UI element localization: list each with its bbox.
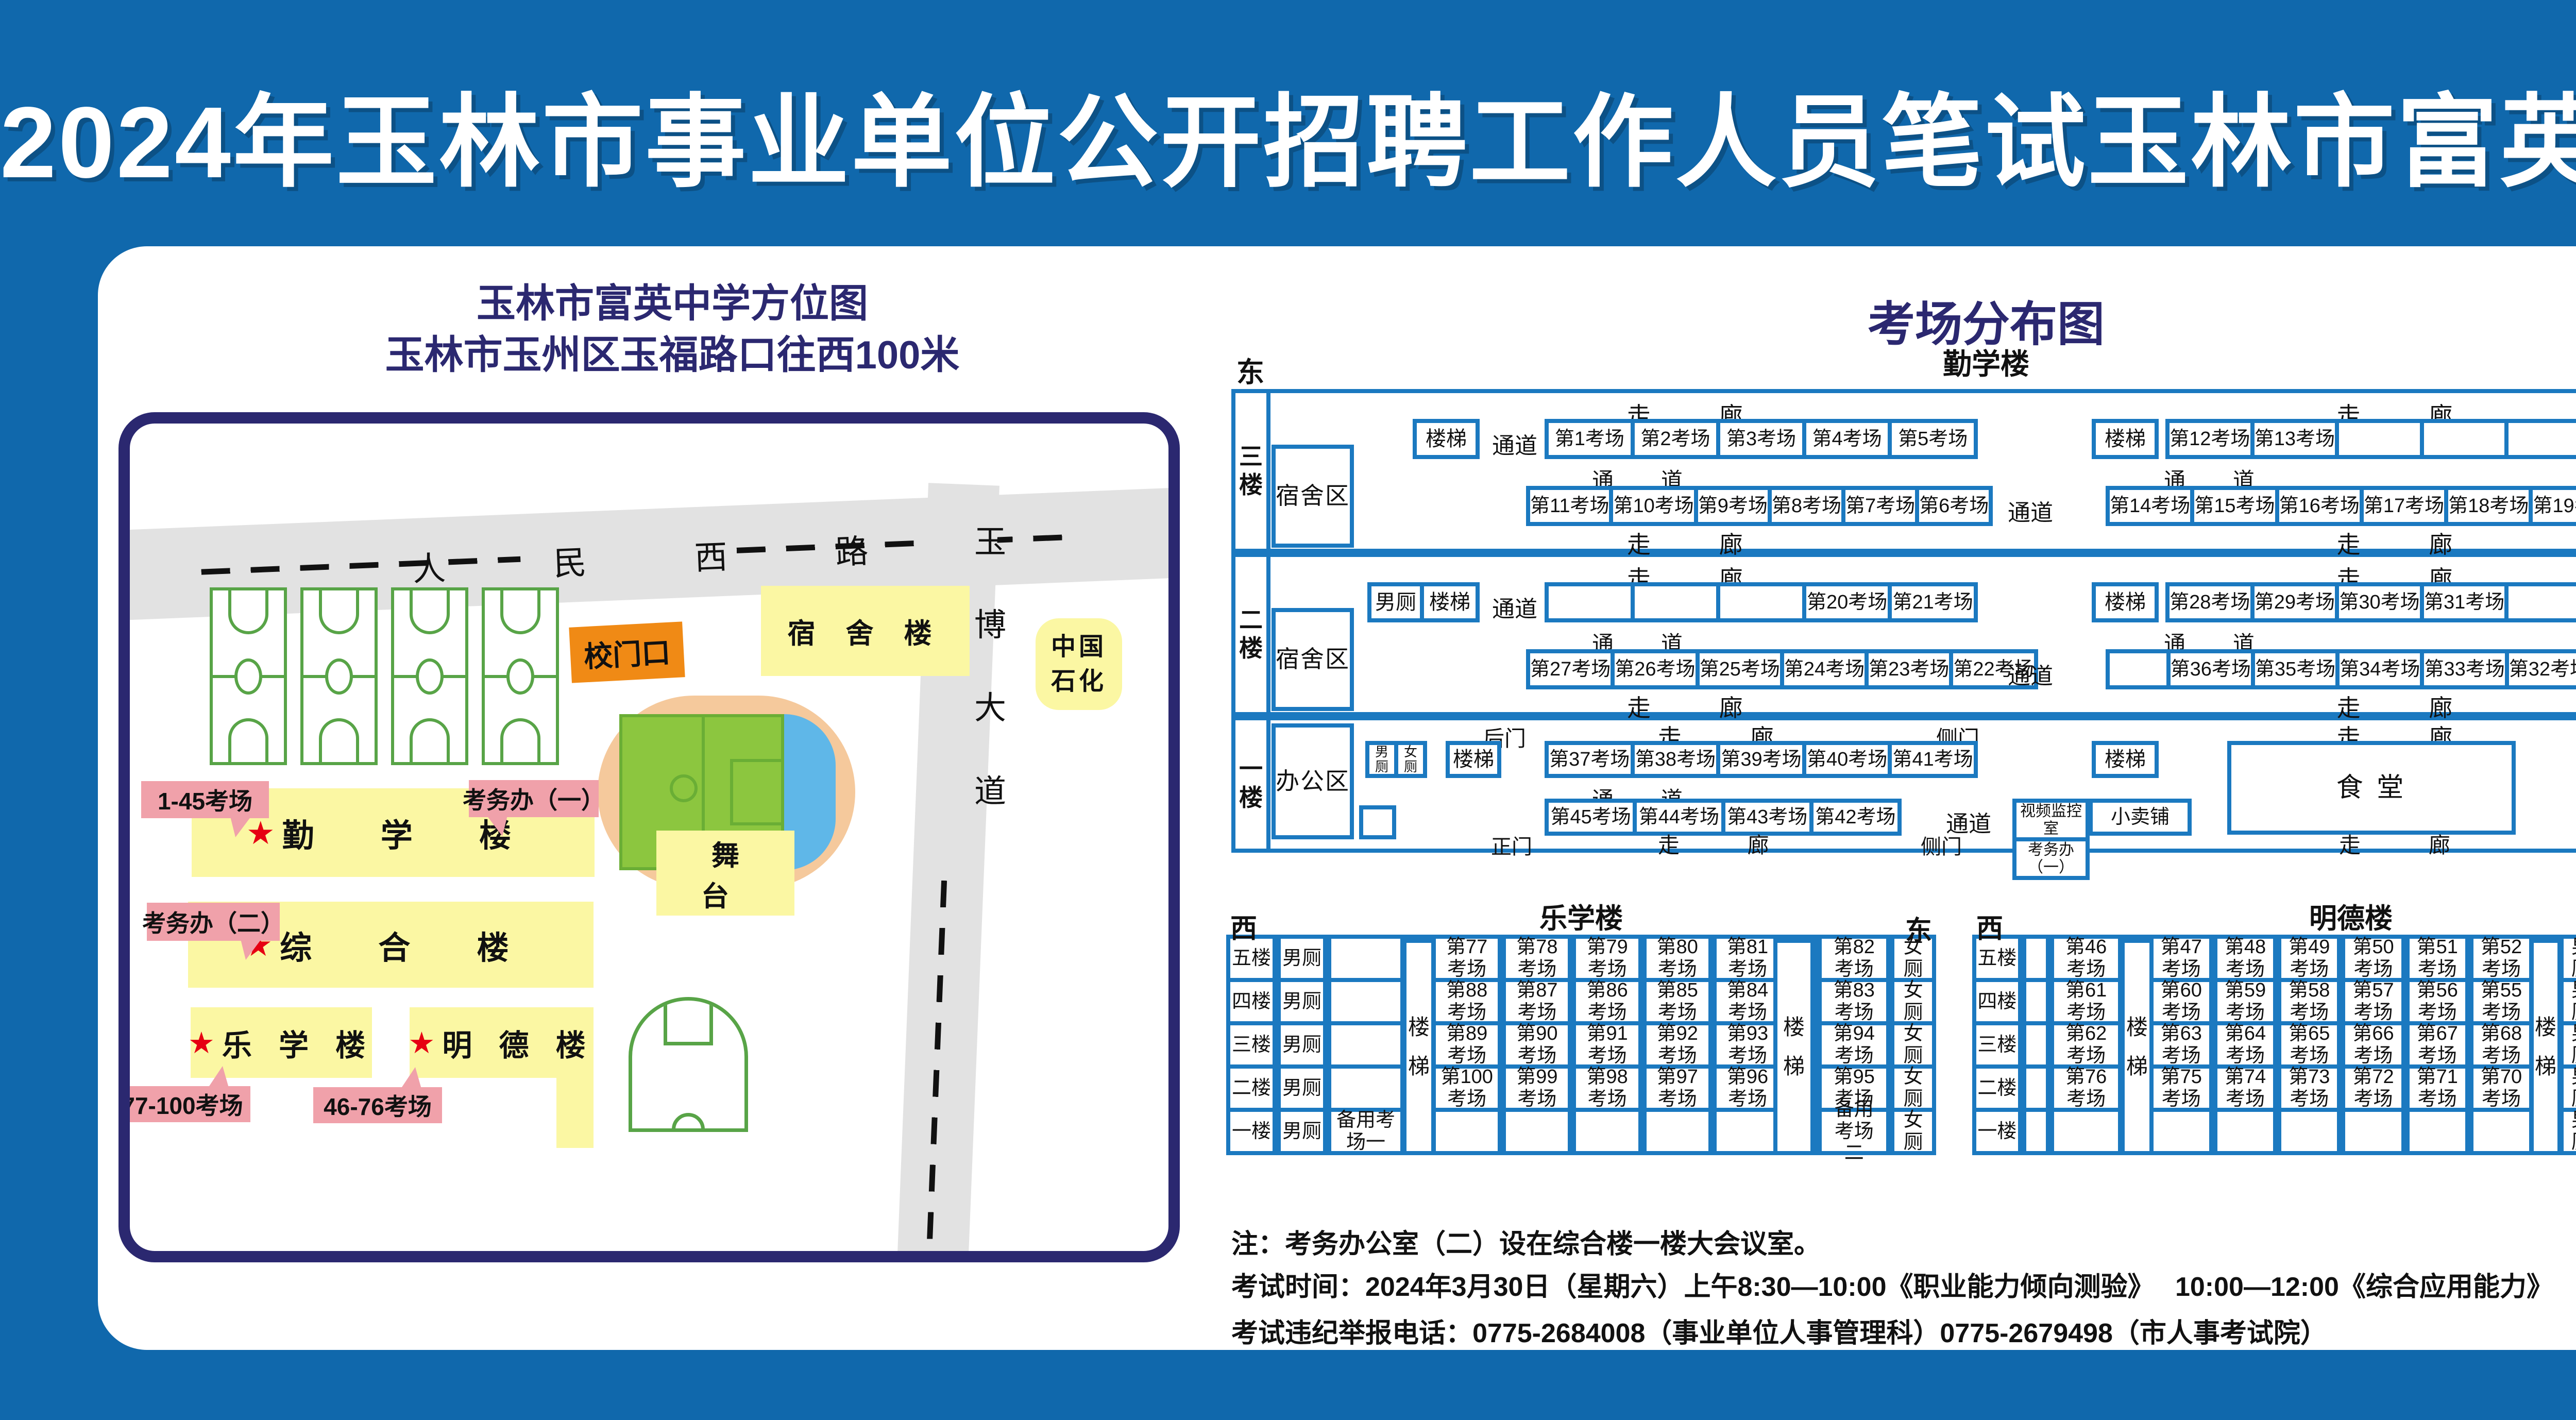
room-cell: 第93考场 <box>1713 1021 1783 1069</box>
toilet-stairs-pair: 男厕 楼梯 <box>1367 582 1480 622</box>
corridor-label: 走 廊 <box>2297 689 2493 723</box>
floor-cell: 一楼 <box>1972 1108 2022 1155</box>
room-cell: 第40考场 <box>1802 741 1892 778</box>
poster: 2024年玉林市事业单位公开招聘工作人员笔试玉林市富英中学考点考场示意图 玉林市… <box>0 0 2576 1420</box>
room-cell <box>2335 419 2424 459</box>
stairs: 楼梯 <box>1446 741 1501 778</box>
male-toilet: 男厕 <box>1277 978 1327 1025</box>
monitor-office-stack: 视频监控室 考务办（一） <box>2012 799 2090 836</box>
sinopec-station: 中国石化 <box>1036 618 1122 710</box>
room-cell: 第83考场 <box>1818 978 1890 1025</box>
floor1-label: 一楼 <box>1236 718 1265 849</box>
office-zone: 办公区 <box>1272 723 1354 839</box>
room-cell <box>2341 1108 2405 1155</box>
mingde-table: 明德楼 西 东 五楼 第46考场 第47考场 第48考场 第49考场 第50考场… <box>1972 939 2576 1155</box>
renmin-road-label: 人 民 西 路 <box>412 523 919 590</box>
room-cell: 第73考场 <box>2277 1064 2341 1112</box>
spare-room-cell: 备用考场一 <box>1327 1108 1404 1155</box>
room-cell: 第74考场 <box>2213 1064 2277 1112</box>
qinxue-floor-plan: 三楼 宿舍区 走 廊 走 廊 楼梯 通道 第1考场第2考场第3考场第4考场第5考… <box>1231 389 2576 853</box>
room-cell: 第78考场 <box>1502 935 1572 982</box>
basketball-court <box>482 587 559 765</box>
room-cell <box>1432 1108 1502 1155</box>
room-cell: 第19考场 <box>2529 486 2576 526</box>
room-cell: 第29考场 <box>2250 582 2340 622</box>
room-cell <box>2469 1108 2533 1155</box>
room-cell: 第28考场 <box>2165 582 2255 622</box>
stage: 舞 台 <box>656 831 794 916</box>
corridor-label: 走 廊 <box>1627 828 1782 859</box>
lexue-table-title: 乐学楼 <box>1226 895 1936 936</box>
small-room <box>1359 805 1396 839</box>
female-toilet: 女厕 <box>1890 978 1936 1025</box>
floor-cell: 三楼 <box>1226 1021 1277 1069</box>
male-toilet: 男厕 <box>2560 1021 2576 1069</box>
room-cell <box>2277 1108 2341 1155</box>
table-row: 一楼 男厕 备用考场一 备用考场二 女厕 <box>1226 1108 1936 1155</box>
mingde-building: ★ 明 德 楼 <box>410 1007 594 1078</box>
table-row: 四楼 男厕 第88考场 第87考场 第86考场 第85考场 第84考场 第83考… <box>1226 978 1936 1025</box>
lexue-table: 乐学楼 西 东 五楼 男厕 第77考场 第78考场 第79考场 第80考场 第8… <box>1226 939 1936 1155</box>
empty-cell <box>2022 1064 2050 1112</box>
female-toilet: 女厕 <box>1890 1021 1936 1069</box>
callout-qinxue-rooms: 1-45考场 <box>141 781 269 818</box>
room-cell <box>1642 1108 1713 1155</box>
table-row: 三楼 第62考场 第63考场 第64考场 第65考场 第66考场 第67考场 第… <box>1972 1021 2576 1069</box>
male-toilet: 男厕 <box>2560 978 2576 1025</box>
main-door-label: 正门 <box>1491 830 1532 860</box>
room-cell: 第21考场 <box>1888 582 1978 622</box>
room-cell: 第25考场 <box>1696 649 1784 689</box>
dorm-zone: 宿舍区 <box>1272 608 1354 711</box>
male-toilet: 男厕 <box>2560 935 2576 982</box>
toilet-pair: 男厕 女厕 <box>1365 741 1427 778</box>
room-cell: 第75考场 <box>2149 1064 2213 1112</box>
mingde-label: 明 德 楼 <box>442 1021 595 1064</box>
room-cell: 第58考场 <box>2277 978 2341 1025</box>
room-cell: 第72考场 <box>2341 1064 2405 1112</box>
star-icon: ★ <box>188 1025 215 1060</box>
male-toilet: 男厕 <box>1277 935 1327 982</box>
floor-cell: 四楼 <box>1226 978 1277 1025</box>
room-cell: 第41考场 <box>1888 741 1978 778</box>
room-cell <box>2149 1108 2213 1155</box>
room-cell: 第87考场 <box>1502 978 1572 1025</box>
basketball-court <box>210 587 287 765</box>
room-cell: 第86考场 <box>1572 978 1642 1025</box>
room-cell: 第100考场 <box>1432 1064 1502 1112</box>
stairs: 楼梯 <box>2092 419 2159 459</box>
room-cell <box>1631 582 1721 622</box>
room-cell: 第90考场 <box>1502 1021 1572 1069</box>
f3-rooms-top-left: 第1考场第2考场第3考场第4考场第5考场 <box>1549 419 1978 459</box>
male-toilet: 男厕 <box>1365 741 1398 778</box>
room-cell <box>1716 582 1806 622</box>
male-toilet: 男厕 <box>2560 1108 2576 1155</box>
spare-room-cell <box>1327 1064 1404 1112</box>
room-cell: 第45考场 <box>1545 799 1637 836</box>
mingde-building-wing <box>556 1077 594 1148</box>
corridor-label: 走 廊 <box>2297 828 2493 859</box>
zonghe-label: 综 合 楼 <box>280 922 537 968</box>
room-cell: 第79考场 <box>1572 935 1642 982</box>
note-line-3: 考试违纪举报电话：0775-2684008（事业单位人事管理科）0775-267… <box>1231 1311 2576 1350</box>
table-row: 二楼 第76考场 第75考场 第74考场 第73考场 第72考场 第71考场 第… <box>1972 1064 2576 1112</box>
room-cell: 第17考场 <box>2360 486 2448 526</box>
room-cell: 第13考场 <box>2250 419 2340 459</box>
map-title-line2: 玉林市玉州区玉福路口往西100米 <box>170 330 1175 381</box>
room-cell <box>1545 582 1635 622</box>
dormitory-building: 宿 舍 楼 <box>761 586 970 676</box>
room-cell: 第38考场 <box>1631 741 1721 778</box>
floor-cell: 二楼 <box>1226 1064 1277 1112</box>
direction-east: 东 <box>1905 909 1932 948</box>
callout-exam-office-1: 考务办（一） <box>469 780 599 817</box>
callout-exam-office-2: 考务办（二） <box>147 903 280 941</box>
room-cell <box>2504 419 2576 459</box>
callout-mingde-rooms: 46-76考场 <box>313 1087 442 1123</box>
table-row: 五楼 男厕 第77考场 第78考场 第79考场 第80考场 第81考场 第82考… <box>1226 935 1936 982</box>
room-cell: 第64考场 <box>2213 1021 2277 1069</box>
empty-cell <box>2022 978 2050 1025</box>
basketball-court <box>391 587 468 765</box>
room-cell: 第91考场 <box>1572 1021 1642 1069</box>
direction-east: 东 <box>1236 349 1264 390</box>
basketball-court <box>300 587 378 765</box>
room-cell: 第47考场 <box>2149 935 2213 982</box>
room-cell: 第49考场 <box>2277 935 2341 982</box>
room-cell: 第62考场 <box>2050 1021 2122 1069</box>
floor3-label: 三楼 <box>1236 393 1265 549</box>
floor-cell: 四楼 <box>1972 978 2022 1025</box>
room-cell <box>2050 1108 2122 1155</box>
f1-rooms-top: 第37考场第38考场第39考场第40考场第41考场 <box>1549 741 1978 778</box>
spare-room-cell <box>1327 935 1404 982</box>
empty-cell <box>2022 1108 2050 1155</box>
floor2-label: 二楼 <box>1236 556 1265 712</box>
room-cell: 第82考场 <box>1818 935 1890 982</box>
lexue-label: 乐 学 楼 <box>222 1021 375 1064</box>
room-cell: 第60考场 <box>2149 978 2213 1025</box>
room-cell: 第2考场 <box>1631 419 1721 459</box>
room-cell: 第18考场 <box>2444 486 2533 526</box>
passage-label: 通道 <box>1997 494 2064 527</box>
room-cell: 第55考场 <box>2469 978 2533 1025</box>
page-title: 2024年玉林市事业单位公开招聘工作人员笔试玉林市富英中学考点考场示意图 <box>0 61 2576 207</box>
room-cell: 第34考场 <box>2335 649 2424 689</box>
room-cell: 第81考场 <box>1713 935 1783 982</box>
stairs: 楼梯 <box>1413 419 1480 459</box>
room-cell: 第57考场 <box>2341 978 2405 1025</box>
room-cell <box>2106 649 2171 689</box>
room-cell: 第61考场 <box>2050 978 2122 1025</box>
mingde-table-title: 明德楼 <box>1972 895 2576 936</box>
table-row: 四楼 第61考场 第60考场 第59考场 第58考场 第57考场 第56考场 第… <box>1972 978 2576 1025</box>
room-cell: 第11考场 <box>1526 486 1613 526</box>
room-cell: 第67考场 <box>2405 1021 2469 1069</box>
room-cell: 第70考场 <box>2469 1064 2533 1112</box>
passage-label: 通道 <box>1484 590 1546 623</box>
room-cell: 第59考场 <box>2213 978 2277 1025</box>
room-cell: 第5考场 <box>1888 419 1978 459</box>
corridor-label: 走 廊 <box>1596 526 1751 560</box>
room-cell: 第30考场 <box>2335 582 2424 622</box>
plan-wall <box>1266 393 1270 849</box>
floor-cell: 一楼 <box>1226 1108 1277 1155</box>
room-cell: 第3考场 <box>1716 419 1806 459</box>
room-cell: 第27考场 <box>1526 649 1615 689</box>
room-cell: 第26考场 <box>1611 649 1699 689</box>
spare-room-cell <box>1327 978 1404 1025</box>
room-cell: 第77考场 <box>1432 935 1502 982</box>
room-cell: 第56考场 <box>2405 978 2469 1025</box>
room-cell: 第66考场 <box>2341 1021 2405 1069</box>
room-cell: 第42考场 <box>1809 799 1902 836</box>
room-cell: 第33考场 <box>2420 649 2509 689</box>
room-cell: 第36考场 <box>2166 649 2255 689</box>
passage-label: 通道 <box>1484 427 1546 460</box>
room-cell: 第89考场 <box>1432 1021 1502 1069</box>
room-cell: 第88考场 <box>1432 978 1502 1025</box>
stairs: 楼梯 <box>2092 741 2159 778</box>
room-cell: 第35考场 <box>2251 649 2340 689</box>
room-cell: 第85考场 <box>1642 978 1713 1025</box>
room-cell: 第96考场 <box>1713 1064 1783 1112</box>
room-cell: 第15考场 <box>2190 486 2279 526</box>
f2-rooms-bottom-right: 第36考场第35考场第34考场第33考场第32考场 <box>2110 649 2576 689</box>
lexue-rows: 五楼 男厕 第77考场 第78考场 第79考场 第80考场 第81考场 第82考… <box>1226 935 1936 1155</box>
female-toilet: 女厕 <box>1890 1108 1936 1155</box>
room-cell <box>1713 1108 1783 1155</box>
table-row: 三楼 男厕 第89考场 第90考场 第91考场 第92考场 第93考场 第94考… <box>1226 1021 1936 1069</box>
empty-cell <box>2022 935 2050 982</box>
direction-west: 西 <box>1976 907 2003 945</box>
stairs: 楼梯 <box>2092 582 2159 622</box>
room-cell: 备用考场二 <box>1818 1108 1890 1155</box>
f3-rooms-top-right: 第12考场第13考场 <box>2170 419 2576 459</box>
room-cell: 第39考场 <box>1716 741 1806 778</box>
room-cell <box>2420 419 2509 459</box>
room-cell <box>1572 1108 1642 1155</box>
half-basketball-court <box>629 997 748 1132</box>
room-cell: 第31考场 <box>2420 582 2509 622</box>
room-cell: 第76考场 <box>2050 1064 2122 1112</box>
room-cell: 第63考场 <box>2149 1021 2213 1069</box>
f3-rooms-bottom-right: 第14考场第15考场第16考场第17考场第18考场第19考场 <box>2110 486 2576 526</box>
room-cell: 第71考场 <box>2405 1064 2469 1112</box>
map-title-line1: 玉林市富英中学方位图 <box>170 278 1175 330</box>
room-cell: 第48考场 <box>2213 935 2277 982</box>
floor-cell: 三楼 <box>1972 1021 2022 1069</box>
room-cell: 第94考场 <box>1818 1021 1890 1069</box>
female-toilet: 女厕 <box>1890 1064 1936 1112</box>
room-cell: 第6考场 <box>1915 486 1993 526</box>
male-toilet: 男厕 <box>1277 1021 1327 1069</box>
map-title: 玉林市富英中学方位图 玉林市玉州区玉福路口往西100米 <box>170 278 1175 382</box>
road-dash-line <box>926 881 947 1262</box>
male-toilet: 男厕 <box>2560 1064 2576 1112</box>
passage-label: 通道 <box>1997 657 2064 690</box>
stairs: 楼梯 <box>1420 582 1480 622</box>
room-cell: 第7考场 <box>1841 486 1919 526</box>
exam-office-1: 考务办（一） <box>2012 837 2090 880</box>
table-row: 五楼 第46考场 第47考场 第48考场 第49考场 第50考场 第51考场 第… <box>1972 935 2576 982</box>
stairs-column: 楼梯 <box>1402 939 1435 1155</box>
room-cell: 第8考场 <box>1768 486 1845 526</box>
corridor-label: 走 廊 <box>1596 689 1751 723</box>
corridor-label: 走 廊 <box>2297 526 2493 560</box>
room-cell <box>2213 1108 2277 1155</box>
room-cell: 第98考场 <box>1572 1064 1642 1112</box>
note-line-2: 考试时间：2024年3月30日（星期六）上午8:30—10:00《职业能力倾向测… <box>1231 1265 2576 1304</box>
video-monitor-room: 视频监控室 <box>2012 799 2090 841</box>
stairs-column: 楼梯 <box>2530 939 2562 1155</box>
room-cell: 第23考场 <box>1865 649 1953 689</box>
room-cell: 第37考场 <box>1545 741 1635 778</box>
room-cell: 第14考场 <box>2106 486 2194 526</box>
room-cell: 第20考场 <box>1802 582 1892 622</box>
room-cell: 第80考场 <box>1642 935 1713 982</box>
room-cell: 第97考场 <box>1642 1064 1713 1112</box>
room-cell: 第65考场 <box>2277 1021 2341 1069</box>
room-cell: 第12考场 <box>2165 419 2255 459</box>
mingde-rows: 五楼 第46考场 第47考场 第48考场 第49考场 第50考场 第51考场 第… <box>1972 935 2576 1155</box>
room-cell: 第32考场 <box>2505 649 2576 689</box>
direction-west: 西 <box>1230 907 1257 945</box>
room-cell <box>1502 1108 1572 1155</box>
school-gate: 校门口 <box>569 621 685 683</box>
room-cell: 第84考场 <box>1713 978 1783 1025</box>
note-line-1: 注：考务办公室（二）设在综合楼一楼大会议室。 <box>1231 1222 2576 1261</box>
room-cell: 第10考场 <box>1609 486 1698 526</box>
room-cell <box>2405 1108 2469 1155</box>
canteen: 食 堂 <box>2227 741 2516 835</box>
star-icon: ★ <box>408 1025 435 1060</box>
male-toilet: 男厕 <box>1277 1064 1327 1112</box>
dorm-zone: 宿舍区 <box>1272 445 1354 548</box>
room-cell: 第51考场 <box>2405 935 2469 982</box>
shop: 小卖铺 <box>2089 799 2192 836</box>
room-cell: 第50考场 <box>2341 935 2405 982</box>
room-cell: 第24考场 <box>1780 649 1869 689</box>
f2-rooms-top-right: 第28考场第29考场第30考场第31考场 <box>2170 582 2576 622</box>
floor-cell: 二楼 <box>1972 1064 2022 1112</box>
basketball-courts <box>210 587 572 765</box>
callout-lexue-rooms: 77-100考场 <box>118 1086 250 1122</box>
plan-building-name: 勤学楼 <box>1819 341 2154 383</box>
room-cell: 第1考场 <box>1545 419 1635 459</box>
room-cell <box>2504 582 2576 622</box>
room-cell: 第9考场 <box>1694 486 1772 526</box>
stairs-column: 楼梯 <box>2121 939 2154 1155</box>
male-toilet: 男厕 <box>1277 1108 1327 1155</box>
stairs-column: 楼梯 <box>1773 939 1815 1155</box>
campus-map: 人 民 西 路 玉博大道 校门口 宿 舍 楼 中国石化 舞 台 ★ 勤 学 楼 <box>118 412 1180 1262</box>
spare-room-cell <box>1327 1021 1404 1069</box>
side-door-label: 侧门 <box>1921 830 1962 860</box>
f2-rooms-top-left: 第20考场第21考场 <box>1549 582 1978 622</box>
room-cell: 第99考场 <box>1502 1064 1572 1112</box>
yubo-avenue-label: 玉博大道 <box>969 501 1012 833</box>
room-cell: 第16考场 <box>2275 486 2364 526</box>
table-row: 一楼 男厕 女厕 <box>1972 1108 2576 1155</box>
female-toilet: 女厕 <box>1394 741 1427 778</box>
room-cell: 第92考场 <box>1642 1021 1713 1069</box>
f3-rooms-bottom-left: 第11考场第10考场第9考场第8考场第7考场第6考场 <box>1530 486 1978 526</box>
room-cell: 第68考场 <box>2469 1021 2533 1069</box>
empty-cell <box>2022 1021 2050 1069</box>
room-cell: 第4考场 <box>1802 419 1892 459</box>
male-toilet: 男厕 <box>1367 582 1424 622</box>
room-cell: 第46考场 <box>2050 935 2122 982</box>
f2-rooms-bottom-left: 第27考场第26考场第25考场第24考场第23考场第22考场 <box>1530 649 1978 689</box>
room-cell: 第52考场 <box>2469 935 2533 982</box>
